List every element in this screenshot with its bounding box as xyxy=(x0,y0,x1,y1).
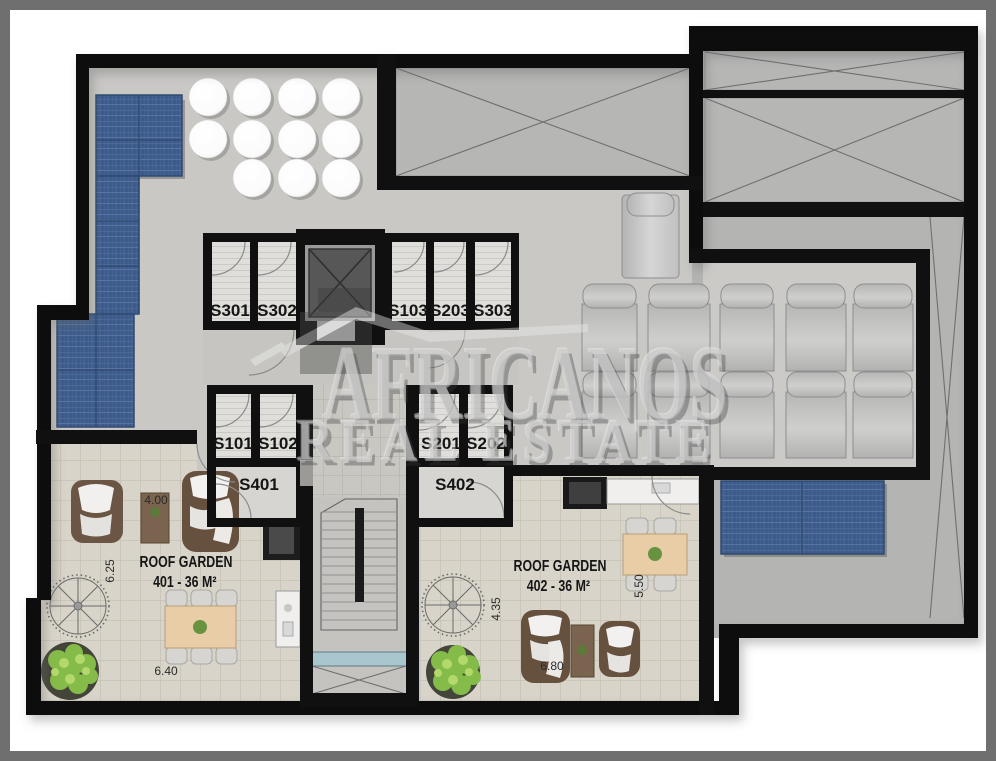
svg-text:ROOF GARDEN: ROOF GARDEN xyxy=(514,557,607,575)
svg-text:6.40: 6.40 xyxy=(154,664,178,678)
svg-text:6.25: 6.25 xyxy=(103,559,117,583)
svg-text:S303: S303 xyxy=(473,301,513,320)
svg-text:ROOF GARDEN: ROOF GARDEN xyxy=(140,553,233,571)
svg-text:4.00: 4.00 xyxy=(144,493,168,507)
svg-text:S101: S101 xyxy=(213,434,253,453)
svg-text:REAL ESTATE: REAL ESTATE xyxy=(297,408,717,475)
svg-text:S103: S103 xyxy=(388,301,428,320)
svg-text:S302: S302 xyxy=(257,301,297,320)
svg-text:S301: S301 xyxy=(210,301,250,320)
svg-text:S102: S102 xyxy=(258,434,298,453)
svg-text:S401: S401 xyxy=(239,475,279,494)
svg-text:S203: S203 xyxy=(430,301,470,320)
svg-text:6.80: 6.80 xyxy=(540,659,564,673)
svg-text:4.35: 4.35 xyxy=(489,597,503,621)
svg-text:402 - 36 M²: 402 - 36 M² xyxy=(527,577,591,595)
svg-text:401 - 36 M²: 401 - 36 M² xyxy=(153,573,217,591)
svg-text:5.50: 5.50 xyxy=(632,574,646,598)
